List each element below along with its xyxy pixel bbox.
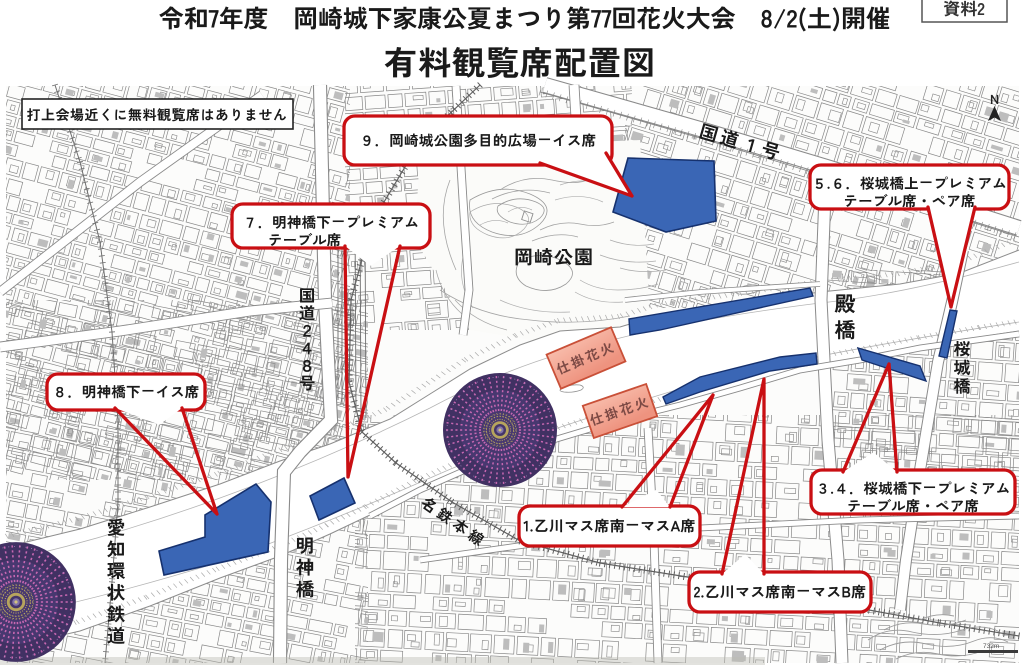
svg-text:732m: 732m	[983, 643, 999, 650]
